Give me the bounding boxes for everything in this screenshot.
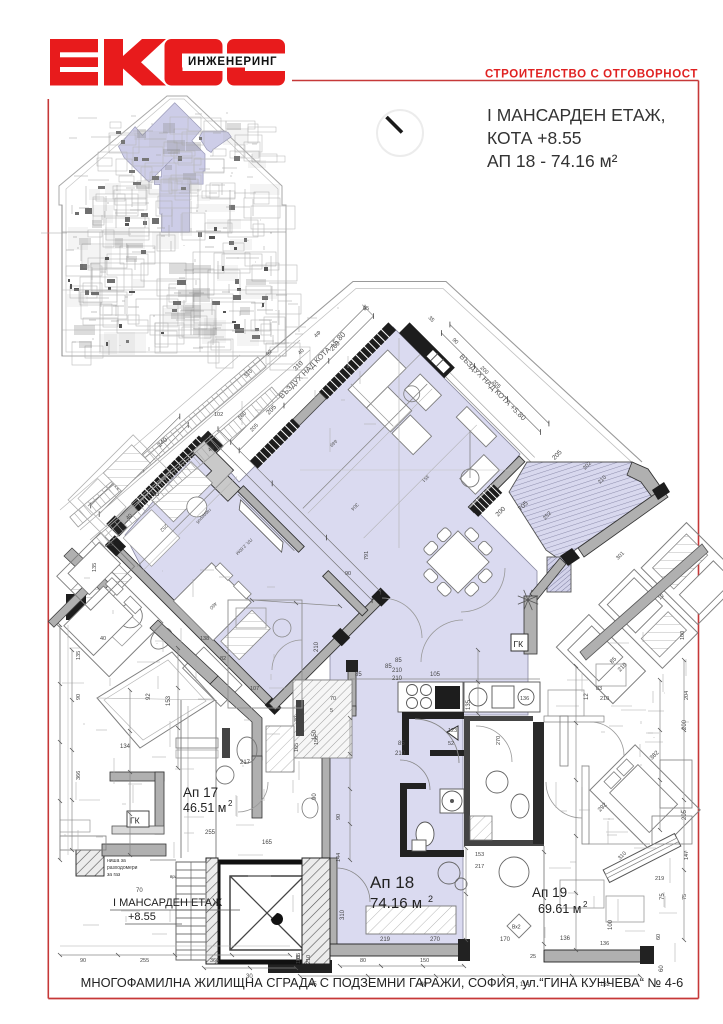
svg-text:46.51 м: 46.51 м [183, 801, 226, 815]
svg-text:АП 18 - 74.16 м²: АП 18 - 74.16 м² [487, 151, 618, 171]
svg-text:85: 85 [398, 741, 405, 747]
svg-text:135: 135 [92, 563, 98, 572]
svg-text:25: 25 [108, 542, 114, 548]
svg-text:791: 791 [364, 551, 370, 560]
svg-text:210: 210 [306, 955, 312, 964]
svg-text:270: 270 [430, 937, 441, 943]
svg-text:І МАНСАРДЕН ЕТАЖ: І МАНСАРДЕН ЕТАЖ [113, 897, 222, 909]
svg-text:60: 60 [656, 934, 662, 940]
svg-text:І МАНСАРДЕН ЕТАЖ,: І МАНСАРДЕН ЕТАЖ, [487, 105, 666, 125]
svg-text:153: 153 [166, 695, 172, 706]
svg-text:210: 210 [392, 668, 403, 674]
svg-text:136: 136 [560, 936, 571, 942]
svg-text:92: 92 [146, 693, 152, 700]
svg-text:69.61 м: 69.61 м [538, 902, 581, 916]
svg-text:219: 219 [655, 876, 664, 882]
svg-text:150: 150 [420, 958, 429, 964]
svg-text:217: 217 [475, 864, 484, 870]
svg-text:219: 219 [380, 937, 391, 943]
svg-text:82: 82 [220, 656, 226, 662]
svg-text:100: 100 [680, 631, 686, 640]
svg-text:210: 210 [392, 676, 403, 682]
svg-text:165: 165 [262, 840, 273, 846]
svg-text:Ап 18: Ап 18 [370, 873, 414, 892]
svg-text:Ап 19: Ап 19 [532, 885, 567, 900]
svg-text:90: 90 [76, 694, 82, 700]
svg-text:136: 136 [520, 696, 529, 702]
svg-text:123: 123 [448, 728, 457, 734]
svg-text:366: 366 [76, 771, 82, 780]
svg-text:205: 205 [682, 809, 688, 820]
svg-text:25: 25 [530, 954, 536, 960]
svg-text:70: 70 [330, 696, 336, 702]
svg-text:2: 2 [228, 799, 233, 808]
svg-text:Вх2: Вх2 [512, 925, 521, 931]
svg-text:60: 60 [659, 965, 665, 972]
svg-text:75: 75 [682, 894, 688, 900]
svg-text:135: 135 [466, 699, 472, 710]
svg-text:107: 107 [250, 686, 259, 692]
svg-text:204: 204 [684, 691, 690, 700]
svg-text:147: 147 [684, 851, 690, 860]
svg-text:90: 90 [312, 793, 318, 800]
svg-text:ГК: ГК [514, 639, 524, 649]
svg-text:80: 80 [360, 958, 366, 964]
svg-text:135: 135 [76, 651, 82, 660]
svg-text:МНОГОФАМИЛНА ЖИЛИЩНА СГРАДА С: МНОГОФАМИЛНА ЖИЛИЩНА СГРАДА С ПОДЗЕМНИ Г… [81, 975, 684, 990]
svg-text:СТРОИТЕЛСТВО С ОТГОВОРНОСТ: СТРОИТЕЛСТВО С ОТГОВОРНОСТ [485, 69, 698, 81]
svg-text:153: 153 [475, 852, 484, 858]
svg-text:2: 2 [583, 900, 588, 909]
svg-text:243: 243 [150, 492, 159, 498]
svg-text:150: 150 [314, 736, 320, 745]
svg-text:12: 12 [584, 693, 590, 700]
svg-text:ГК: ГК [130, 816, 140, 826]
svg-text:25: 25 [466, 759, 472, 766]
svg-text:90: 90 [345, 571, 351, 577]
svg-text:210: 210 [395, 751, 406, 757]
svg-text:ИНЖЕНЕРИНГ: ИНЖЕНЕРИНГ [188, 56, 277, 68]
svg-text:210: 210 [314, 641, 320, 652]
svg-text:105: 105 [430, 672, 441, 678]
svg-text:85: 85 [355, 672, 362, 678]
svg-text:90: 90 [80, 958, 86, 964]
svg-text:210: 210 [600, 696, 609, 702]
svg-text:165: 165 [294, 743, 300, 752]
svg-text:разходомери: разходомери [107, 865, 138, 871]
svg-text:5: 5 [330, 708, 333, 714]
svg-text:366: 366 [210, 958, 219, 964]
svg-text:40: 40 [100, 636, 106, 642]
svg-text:83: 83 [596, 686, 602, 692]
svg-text:310: 310 [340, 909, 346, 920]
svg-text:105: 105 [296, 953, 302, 962]
svg-text:217: 217 [240, 760, 251, 766]
svg-text:255: 255 [140, 958, 149, 964]
svg-text:75: 75 [660, 893, 666, 900]
svg-text:85: 85 [395, 658, 402, 664]
svg-text:100: 100 [608, 919, 614, 930]
svg-text:70: 70 [136, 888, 143, 894]
svg-text:90: 90 [336, 814, 342, 820]
svg-text:136: 136 [600, 941, 609, 947]
svg-text:2: 2 [428, 894, 433, 904]
svg-text:170: 170 [500, 937, 511, 943]
svg-text:134: 134 [120, 744, 131, 750]
svg-text:138: 138 [200, 636, 209, 642]
svg-text:за газ: за газ [107, 872, 121, 878]
svg-text:270: 270 [496, 736, 502, 745]
svg-text:144: 144 [336, 853, 342, 862]
svg-text:255: 255 [205, 830, 216, 836]
svg-text:Ап 17: Ап 17 [183, 785, 218, 800]
svg-text:ниша за: ниша за [107, 858, 126, 864]
svg-text:102: 102 [214, 412, 223, 418]
svg-text:КОТА +8.55: КОТА +8.55 [487, 128, 582, 148]
svg-text:52: 52 [448, 741, 454, 747]
svg-text:05: 05 [363, 306, 369, 312]
svg-text:+8.55: +8.55 [128, 911, 156, 923]
svg-text:74.16 м: 74.16 м [370, 895, 422, 912]
svg-text:30: 30 [294, 716, 300, 722]
